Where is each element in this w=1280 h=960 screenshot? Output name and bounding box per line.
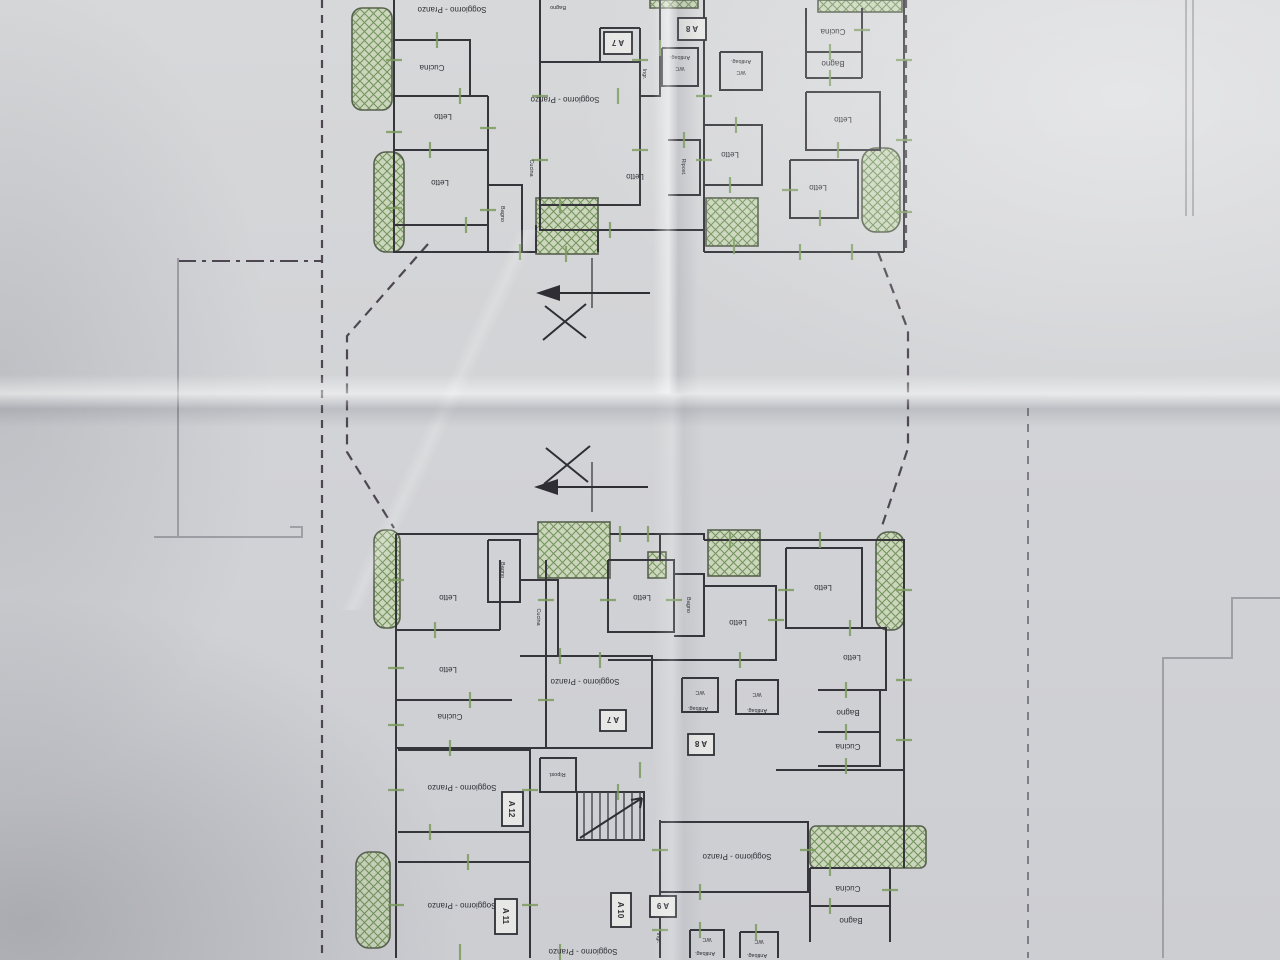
plan-bottom-labels: Letto Letto Cucina Bagno Cucina Soggiorn… <box>427 562 863 958</box>
room-label-letto: Letto <box>729 618 747 627</box>
room-label-cucina: Cucina <box>835 884 860 893</box>
apartment-badge-a10: A 10 <box>616 902 625 919</box>
room-label-soggiorno: Soggiorno - Pranzo <box>550 677 619 686</box>
balcony-hatch <box>536 198 598 254</box>
room-label-bagno-vertical: Bagno <box>499 206 505 222</box>
apartment-badge-a11: A 11 <box>501 908 510 925</box>
room-label-wc: WC <box>752 691 761 697</box>
section-x-mark <box>544 446 590 484</box>
room-label-wc: WC <box>675 65 684 71</box>
room-label-soggiorno: Soggiorno - Pranzo <box>530 95 599 104</box>
room-label-soggiorno: Soggiorno - Pranzo <box>417 5 486 14</box>
floorplan-drawing: Soggiorno - Pranzo Bagno Cucina Letto Le… <box>0 0 1280 960</box>
boundary-inner-right-dashed <box>878 252 908 526</box>
apartment-badge-a7: A 7 <box>611 38 624 47</box>
room-label-cucina-vertical: Cucina <box>535 608 541 626</box>
apartment-badge-a8: A 8 <box>685 24 698 33</box>
apartment-badge-a12: A 12 <box>507 801 516 818</box>
plan-top-section-arrow <box>536 285 650 340</box>
room-label-letto: Letto <box>431 178 449 187</box>
room-label-letto: Letto <box>814 583 832 592</box>
room-label-antibagno: Antibag. <box>694 950 715 956</box>
ticks-horizontal <box>386 30 912 212</box>
outer-walls <box>394 0 904 252</box>
balcony-hatch <box>374 152 404 252</box>
room-label-letto: Letto <box>834 115 852 124</box>
room-label-wc: WC <box>754 938 763 944</box>
room-label-bagno-vertical: Bagno <box>499 562 505 578</box>
room-label-ripostiglio-vertical: Ripost. <box>680 158 686 176</box>
balcony-hatch <box>862 148 900 232</box>
balcony-hatch <box>356 852 390 948</box>
boundary-inner-left-dashed <box>347 244 428 528</box>
room-label-letto: Letto <box>809 183 827 192</box>
plan-top-walls <box>394 0 904 308</box>
room-label-wc: WC <box>695 689 704 695</box>
floorplan-photo: Soggiorno - Pranzo Bagno Cucina Letto Le… <box>0 0 1280 960</box>
room-label-ingresso-vertical: Ingr. <box>655 933 661 944</box>
plan-bottom: Letto Letto Cucina Bagno Cucina Soggiorn… <box>356 446 926 960</box>
plan-bottom-section-arrow <box>534 446 648 495</box>
room-label-soggiorno: Soggiorno - Pranzo <box>702 852 771 861</box>
site-line-bottomright <box>1163 598 1280 958</box>
room-label-letto: Letto <box>439 593 457 602</box>
room-label-letto: Letto <box>434 112 452 121</box>
room-label-antibagno: Antibag. <box>746 707 767 713</box>
room-label-antibagno: Antibag. <box>730 58 751 64</box>
room-label-antibagno: Antibag. <box>687 705 708 711</box>
room-label-bagno: Bagno <box>821 59 845 68</box>
balcony-hatch <box>810 826 926 868</box>
balcony-hatch <box>650 0 698 8</box>
section-x-mark <box>543 304 586 340</box>
balcony-hatch <box>818 0 902 12</box>
balcony-hatch <box>708 530 760 576</box>
room-label-letto: Letto <box>843 653 861 662</box>
room-label-letto: Letto <box>721 150 739 159</box>
balcony-hatch <box>648 552 666 578</box>
room-label-soggiorno: Soggiorno - Pranzo <box>548 947 617 956</box>
room-label-bagno-vertical: Bagno <box>685 597 691 613</box>
room-label-soggiorno: Soggiorno - Pranzo <box>427 783 496 792</box>
room-label-antibagno: Antibag. <box>746 952 767 958</box>
room-label-cucina: Cucina <box>820 27 845 36</box>
room-label-bagno: Bagno <box>550 4 566 10</box>
balcony-hatch <box>876 532 904 630</box>
room-label-ingresso-vertical: Ingr. <box>641 69 647 80</box>
plan-top: Soggiorno - Pranzo Bagno Cucina Letto Le… <box>352 0 912 340</box>
plan-bottom-dimension-ticks <box>388 526 912 960</box>
apartment-badge-a9: A 9 <box>656 901 669 910</box>
site-line-topright <box>1186 0 1193 216</box>
room-label-bagno: Bagno <box>836 708 860 717</box>
room-label-wc: WC <box>736 69 745 75</box>
room-label-cucina: Cucina <box>835 742 860 751</box>
site-boundary-lines <box>154 0 1280 958</box>
room-label-soggiorno: Soggiorno - Pranzo <box>427 901 496 910</box>
apartment-badge-a7: A 7 <box>606 715 619 724</box>
room-label-ripostiglio: Ripost. <box>548 771 566 777</box>
room-label-antibagno: Antibag. <box>669 54 690 60</box>
room-label-letto: Letto <box>626 172 644 181</box>
room-label-letto: Letto <box>633 593 651 602</box>
room-label-cucina-vertical: Cucina <box>528 159 534 177</box>
plan-bottom-walls <box>396 462 904 958</box>
site-line-left-bottom <box>154 527 302 538</box>
room-label-cucina: Cucina <box>419 63 444 72</box>
balcony-hatch <box>538 522 610 578</box>
balcony-hatch <box>706 198 758 246</box>
section-arrow-head <box>536 285 560 301</box>
room-label-letto: Letto <box>439 665 457 674</box>
room-label-cucina: Cucina <box>437 712 462 721</box>
room-label-wc: WC <box>702 936 711 942</box>
room-label-bagno: Bagno <box>839 916 863 925</box>
apartment-badge-a8: A 8 <box>694 739 707 748</box>
